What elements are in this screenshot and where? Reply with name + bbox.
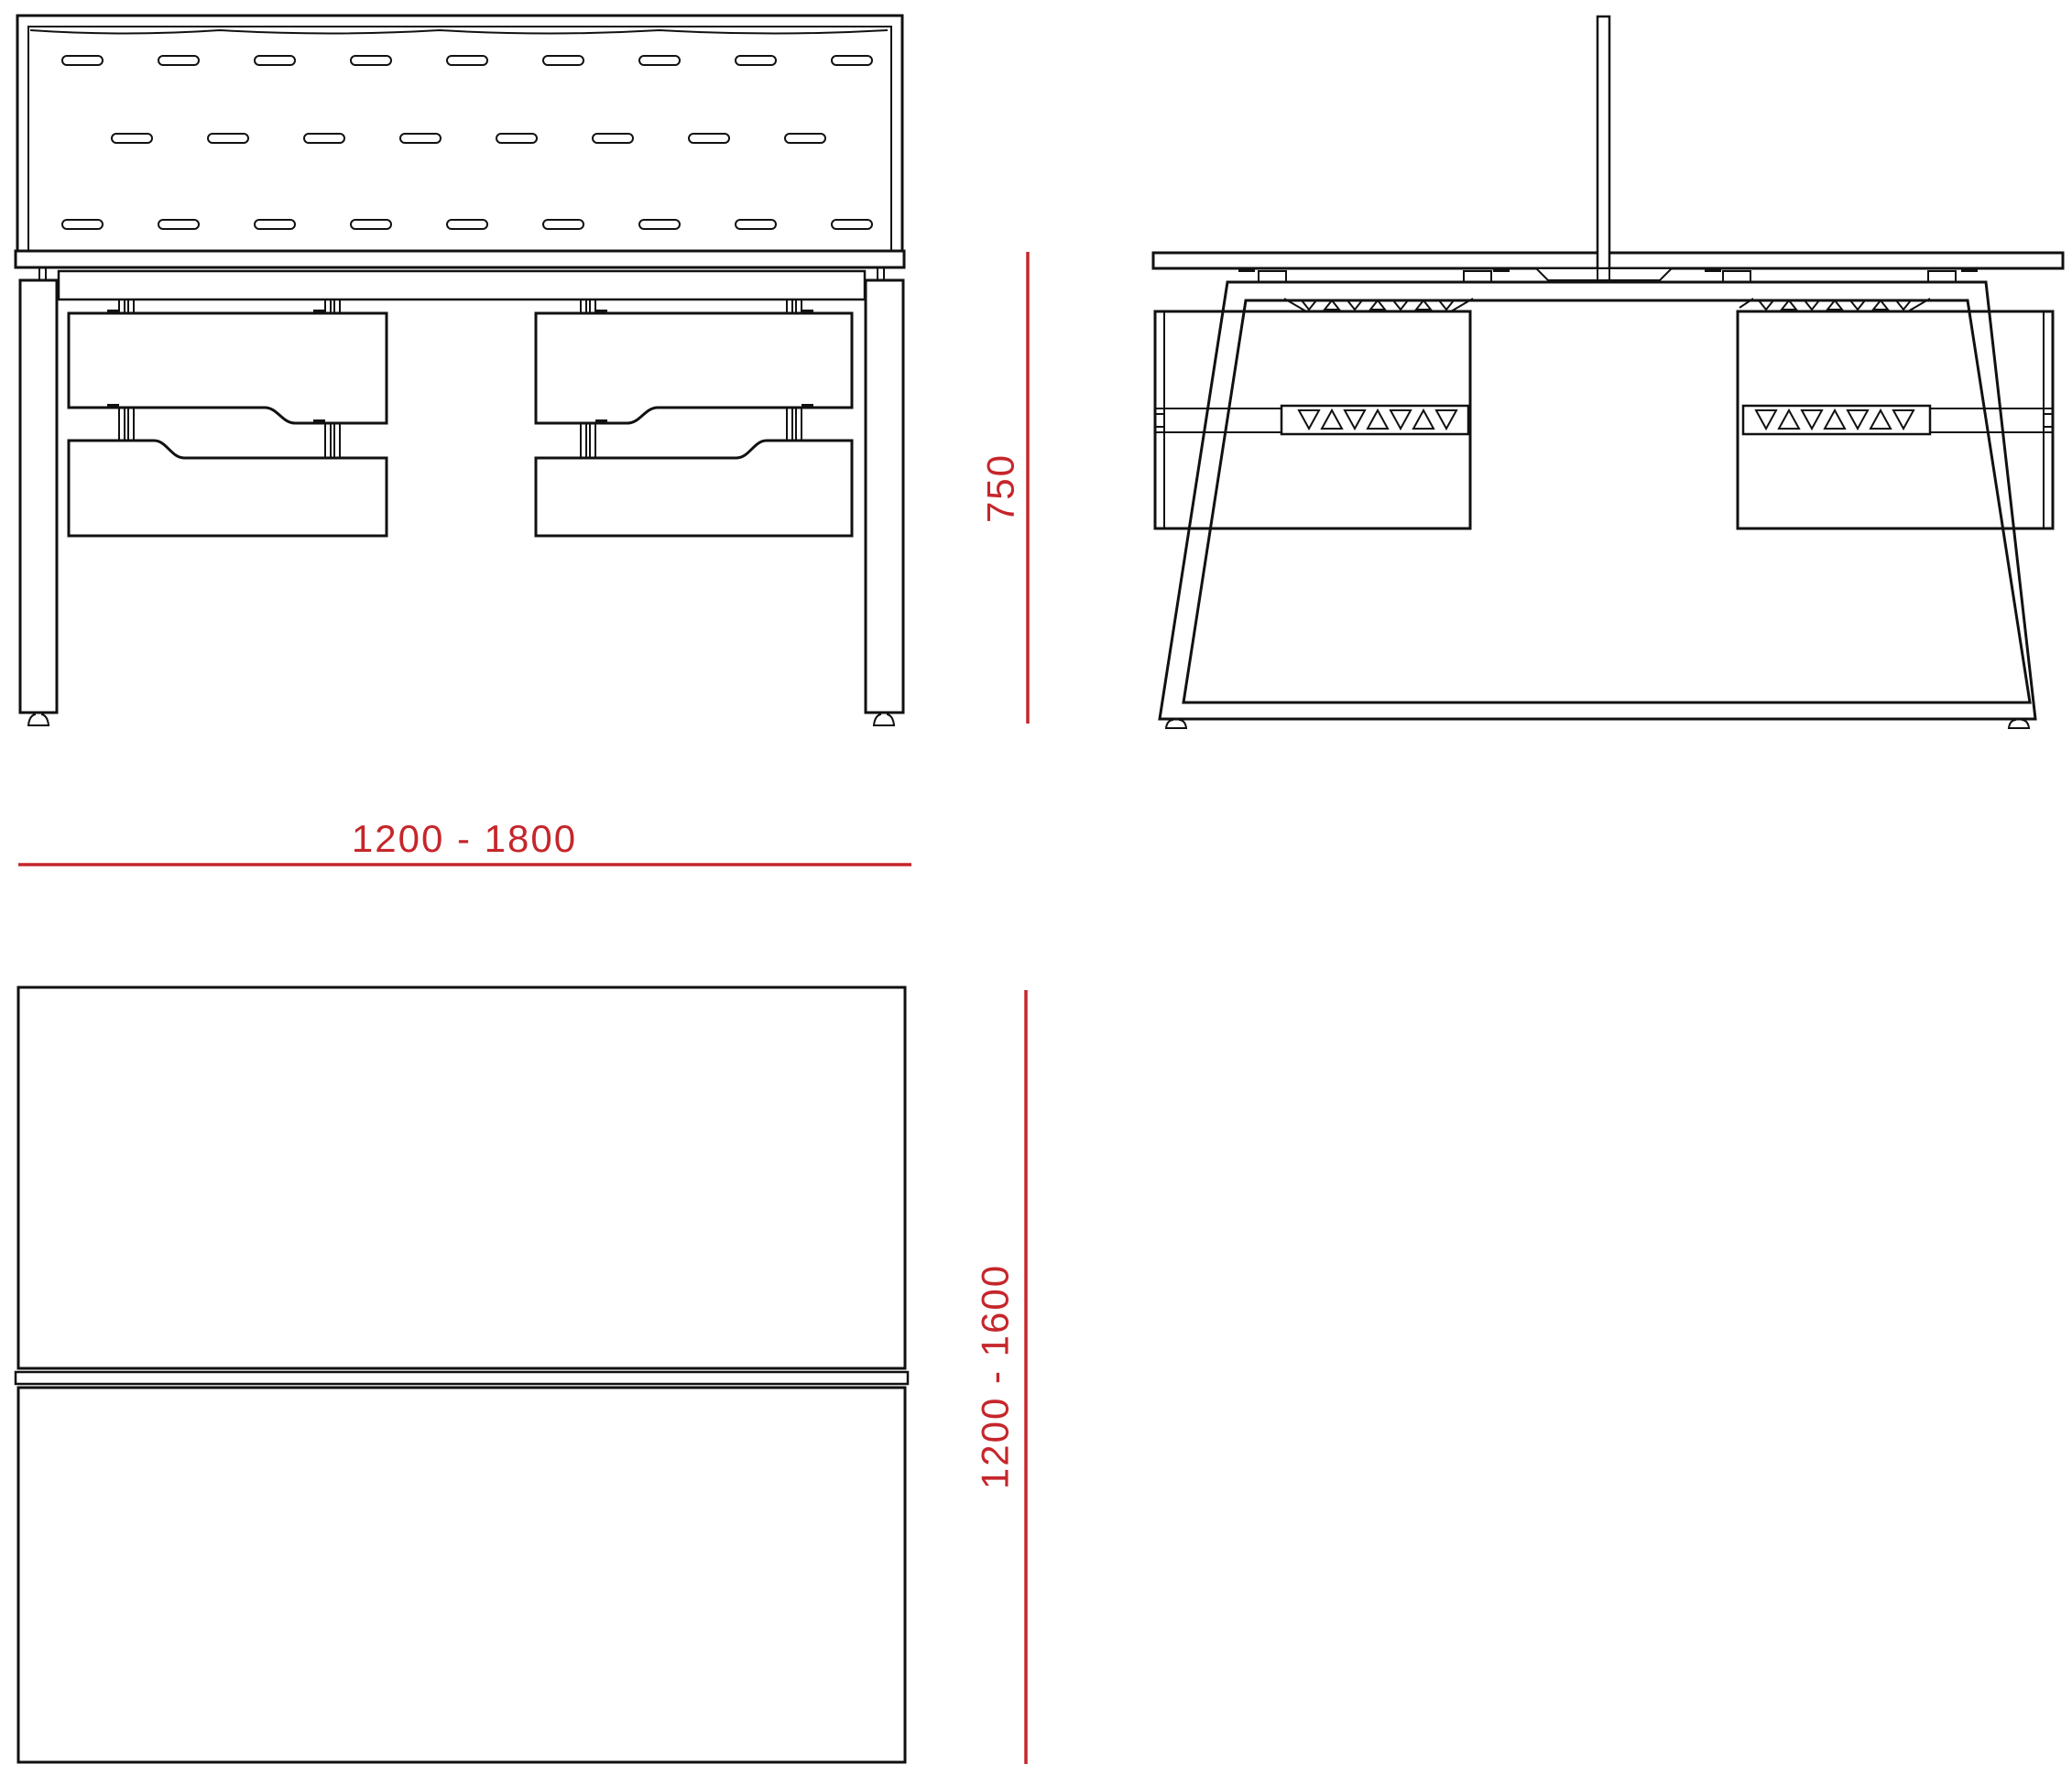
- front-elevation-view: [16, 16, 904, 725]
- screen-outer-frame: [17, 16, 902, 251]
- screen-slot: [736, 56, 776, 65]
- triangle-up: [1870, 410, 1891, 429]
- plan-desktop-top: [18, 987, 905, 1368]
- plan-view: [16, 987, 908, 1762]
- screen-slot: [543, 56, 583, 65]
- triangle-down: [1893, 410, 1914, 429]
- triangle-up: [1779, 410, 1799, 429]
- clip-mark: [595, 310, 607, 313]
- screen-slot: [736, 220, 776, 229]
- front-right-leg-spigot: [878, 267, 884, 280]
- screen-slot: [304, 134, 344, 143]
- grip-band-triangles: [1756, 410, 1914, 429]
- triangle-up: [1322, 410, 1342, 429]
- clip-mark: [802, 404, 813, 408]
- screen-slot: [832, 220, 872, 229]
- front-desktop: [16, 251, 904, 267]
- screen-slot: [255, 220, 295, 229]
- depth-dimension-label: 1200 - 1600: [974, 1264, 1017, 1489]
- clip-mark: [1961, 268, 1978, 272]
- screen-slot: [785, 134, 825, 143]
- hanger-tab: [787, 408, 792, 441]
- hanger-tab: [581, 299, 586, 313]
- front-left-pedestal: [69, 299, 387, 536]
- screen-slot: [351, 220, 391, 229]
- front-right-pedestal: [536, 299, 852, 536]
- pedestal-body: [1738, 311, 2053, 528]
- screen-fabric-edge: [30, 30, 888, 34]
- screen-slot: [639, 56, 680, 65]
- dimension-height: 750: [979, 252, 1029, 724]
- spacer-block: [1464, 271, 1491, 282]
- hanger-tab: [325, 299, 331, 313]
- screen-slot: [447, 220, 487, 229]
- hanger-tab: [590, 423, 595, 458]
- clip-mark: [1705, 268, 1721, 272]
- hanger-tab: [796, 299, 802, 313]
- front-right-leg: [866, 280, 903, 713]
- plan-desktop-bottom: [18, 1388, 905, 1762]
- left-pedestal-bottom-drawer: [69, 441, 387, 536]
- screen-slot: [158, 56, 199, 65]
- hanger-tab: [787, 299, 792, 313]
- right-pedestal-bottom-drawer: [536, 441, 852, 536]
- triangle-down: [1436, 410, 1456, 429]
- front-left-foot: [28, 713, 49, 725]
- hanger-tab: [581, 423, 586, 458]
- loop-leg-inner: [1183, 300, 2030, 702]
- front-right-foot: [874, 713, 894, 725]
- clip-mark: [313, 419, 325, 423]
- hanger-tab: [334, 423, 340, 458]
- screen-slot: [639, 220, 680, 229]
- dimension-width: 1200 - 1800: [18, 817, 911, 865]
- screen-slot: [593, 134, 633, 143]
- height-dimension-label: 750: [979, 453, 1022, 523]
- clip-mark: [107, 404, 119, 408]
- screen-slot: [255, 56, 295, 65]
- side-right-pedestal: [1738, 299, 2053, 528]
- clip-mark: [1493, 268, 1510, 272]
- plan-screen-divider: [16, 1372, 908, 1384]
- hanger-tab: [128, 408, 134, 441]
- clip-mark: [1238, 268, 1255, 272]
- screen-slot: [62, 56, 103, 65]
- front-support-rail: [59, 271, 865, 299]
- grip-band-triangles: [1299, 410, 1456, 429]
- triangle-up: [1368, 410, 1388, 429]
- triangle-down: [1848, 410, 1868, 429]
- screen-slot: [543, 220, 583, 229]
- hanger-tab: [334, 299, 340, 313]
- loop-leg-outer: [1160, 282, 2035, 719]
- spacer-block: [1723, 271, 1750, 282]
- screen-slot: [400, 134, 441, 143]
- triangle-down: [1345, 410, 1365, 429]
- spacer-block: [1259, 271, 1286, 282]
- screen-slot: [62, 220, 103, 229]
- screen-slot-pattern: [62, 56, 872, 229]
- hanger-tab: [119, 299, 125, 313]
- hanger-tab: [590, 299, 595, 313]
- clip-mark: [595, 419, 607, 423]
- width-dimension-label: 1200 - 1800: [352, 817, 577, 860]
- hanger-tab: [796, 408, 802, 441]
- triangle-down: [1802, 410, 1822, 429]
- centre-screen-post: [1598, 16, 1609, 268]
- triangle-down: [1390, 410, 1411, 429]
- triangle-up: [1825, 410, 1845, 429]
- screen-slot: [351, 56, 391, 65]
- dimension-depth: 1200 - 1600: [974, 990, 1027, 1764]
- pedestal-body: [1155, 311, 1470, 528]
- side-left-pedestal: [1155, 299, 1473, 528]
- screen-slot: [158, 220, 199, 229]
- front-left-leg: [20, 280, 57, 713]
- screen-clamp-bracket: [1536, 268, 1672, 280]
- screen-slot: [112, 134, 152, 143]
- drawing-canvas: 750 1200 - 1800 1200 - 1600: [0, 0, 2072, 1786]
- spacer-block: [1928, 271, 1956, 282]
- screen-slot: [447, 56, 487, 65]
- side-elevation-view: [1153, 16, 2063, 728]
- clip-mark: [313, 310, 325, 313]
- triangle-down: [1299, 410, 1319, 429]
- screen-slot: [832, 56, 872, 65]
- technical-drawing-sheet: 750 1200 - 1800 1200 - 1600: [0, 0, 2072, 1786]
- clip-mark: [107, 310, 119, 313]
- clip-mark: [802, 310, 813, 313]
- triangle-up: [1413, 410, 1434, 429]
- hanger-tab: [128, 299, 134, 313]
- triangle-down: [1756, 410, 1776, 429]
- hanger-tab: [325, 423, 331, 458]
- hanger-tab: [119, 408, 125, 441]
- screen-slot: [208, 134, 248, 143]
- screen-slot: [496, 134, 537, 143]
- front-left-leg-spigot: [39, 267, 46, 280]
- screen-slot: [689, 134, 729, 143]
